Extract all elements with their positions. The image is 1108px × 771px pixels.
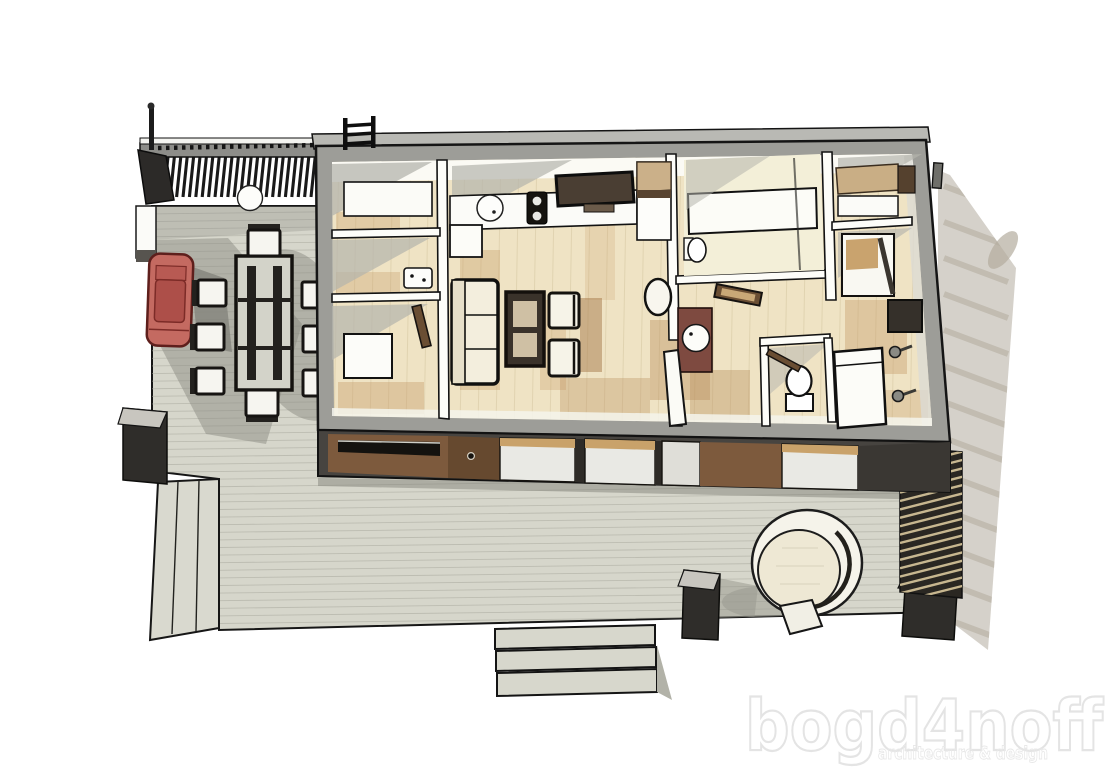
kitchen-wall-panel: [556, 172, 634, 206]
sofa: [452, 280, 498, 384]
coffee-table: [506, 292, 544, 366]
facade-wood-panel: [700, 442, 782, 488]
bed: [834, 348, 886, 428]
closet-shelf: [836, 164, 900, 194]
shower-room: [684, 154, 824, 276]
kitchen-side-cabinet: [450, 225, 482, 257]
facade-glass-door: [662, 441, 700, 486]
dining-chair: [192, 280, 226, 306]
roof-vent-post: [932, 163, 943, 189]
pergola-beam-top: [140, 138, 322, 144]
render-canvas: bogd4noff architecture & design: [0, 0, 1108, 771]
kitchen-sink: [477, 195, 503, 221]
armchair: [549, 340, 579, 376]
closet-dark-front: [898, 166, 915, 193]
storage-shelf: [344, 182, 432, 216]
front-door-handle: [468, 453, 475, 460]
washbasin: [683, 325, 710, 352]
armchair: [549, 293, 579, 328]
entry-cabinet: [344, 334, 392, 378]
deck-steps-left: [150, 479, 219, 640]
bedroom-desk: [888, 300, 922, 332]
dining-chair: [248, 224, 280, 256]
shower-room-toilet: [688, 238, 706, 262]
watermark: bogd4noff architecture & design: [745, 685, 1104, 767]
carport-ceiling-light: [238, 186, 263, 211]
watermark-subtitle: architecture & design: [878, 744, 1048, 764]
kitchen-panel-base: [584, 204, 614, 212]
facade-dark-end: [858, 442, 950, 492]
steps-side-shadow: [657, 645, 672, 700]
pergola-fixings-row: [158, 145, 320, 148]
wall-utility-entry: [332, 292, 440, 302]
wall-boiler-panel: [404, 268, 432, 288]
pergola-carport: [138, 103, 322, 211]
wall-left-column: [437, 160, 449, 419]
deck-steps-front: [495, 625, 672, 700]
dining-chair: [246, 390, 278, 422]
wall-storage-utility: [332, 228, 440, 238]
lounge-chair: [645, 279, 671, 315]
dining-table: [236, 256, 292, 390]
house: [312, 116, 950, 492]
dining-chair: [190, 368, 224, 394]
floor-plan-render: bogd4noff architecture & design: [0, 0, 1108, 771]
red-car: [146, 253, 193, 346]
dining-chair: [190, 324, 224, 350]
armchair-shadow: [580, 298, 602, 372]
pergola-pole: [149, 106, 154, 150]
pergola-pole-cap: [148, 103, 155, 110]
planter-box: [678, 570, 720, 640]
planter-box: [118, 408, 167, 484]
